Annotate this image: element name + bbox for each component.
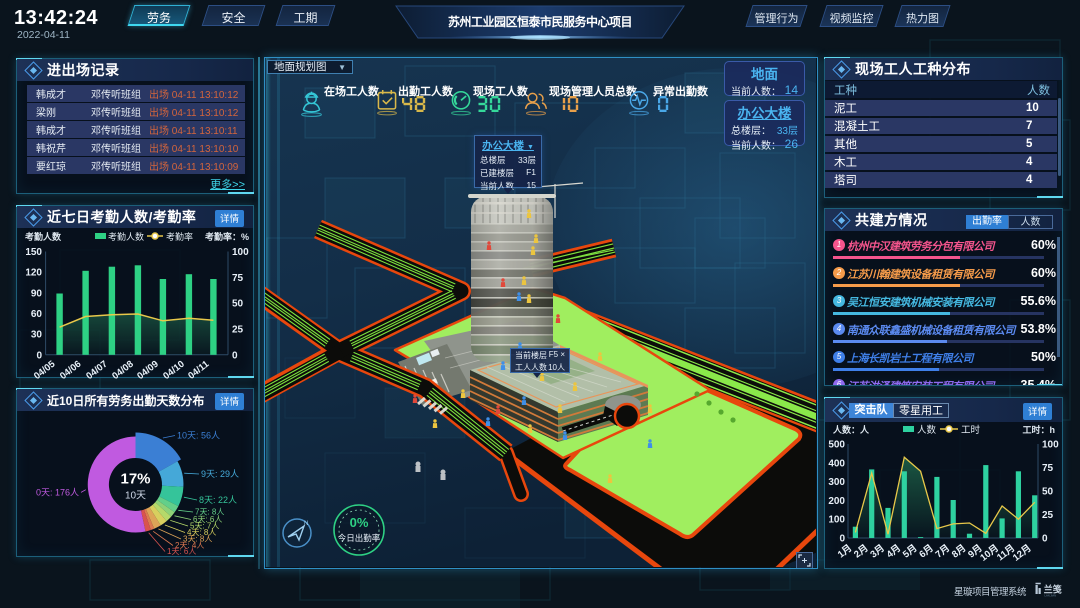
svg-text:0%: 0%	[350, 515, 369, 530]
svg-text:90: 90	[31, 288, 43, 299]
svg-text:0: 0	[839, 534, 845, 545]
svg-text:工时：h: 工时：h	[1023, 424, 1056, 435]
svg-text:人数：人: 人数：人	[832, 424, 870, 435]
svg-text:0天: 176人: 0天: 176人	[36, 487, 79, 497]
svg-text:04/07: 04/07	[84, 359, 110, 379]
svg-text:400: 400	[828, 458, 845, 469]
svg-text:考勤率: 考勤率	[166, 231, 193, 242]
svg-text:10天: 56人: 10天: 56人	[177, 431, 220, 441]
svg-text:9天: 29人: 9天: 29人	[201, 469, 239, 479]
svg-text:100: 100	[232, 247, 249, 258]
svg-text:200: 200	[828, 496, 845, 507]
svg-text:考勤率：%: 考勤率：%	[205, 231, 249, 242]
svg-text:0: 0	[36, 350, 42, 361]
svg-text:25: 25	[232, 325, 244, 336]
svg-text:今日出勤率: 今日出勤率	[338, 533, 381, 543]
svg-text:30: 30	[31, 330, 43, 341]
svg-text:25: 25	[1042, 510, 1054, 521]
svg-text:0: 0	[232, 350, 238, 361]
svg-text:8天: 22人: 8天: 22人	[199, 495, 237, 505]
svg-text:60: 60	[31, 309, 43, 320]
svg-text:N: N	[304, 521, 308, 527]
svg-text:0: 0	[1042, 534, 1048, 545]
svg-text:10天: 10天	[125, 491, 146, 502]
svg-text:17%: 17%	[120, 471, 150, 488]
svg-text:75: 75	[1042, 463, 1054, 474]
svg-text:04/05: 04/05	[32, 358, 58, 379]
svg-text:1天: 6人: 1天: 6人	[167, 547, 196, 556]
svg-text:考勤人数: 考勤人数	[108, 231, 144, 242]
svg-text:04/10: 04/10	[161, 359, 187, 379]
svg-text:75: 75	[232, 273, 244, 284]
svg-text:工时: 工时	[961, 424, 981, 436]
svg-text:04/08: 04/08	[110, 359, 136, 379]
svg-text:04/11: 04/11	[186, 358, 212, 379]
svg-text:50: 50	[1042, 487, 1054, 498]
svg-text:04/06: 04/06	[58, 359, 84, 379]
svg-text:人数: 人数	[917, 424, 937, 436]
svg-text:150: 150	[25, 247, 42, 258]
svg-text:12月: 12月	[1011, 543, 1034, 564]
svg-text:120: 120	[25, 268, 42, 279]
svg-text:100: 100	[828, 515, 845, 526]
svg-text:100: 100	[1042, 440, 1059, 451]
svg-text:兰笺: 兰笺	[1044, 584, 1062, 595]
svg-text:50: 50	[232, 299, 244, 310]
svg-text:LAN JIAN: LAN JIAN	[1045, 593, 1057, 597]
svg-text:300: 300	[828, 477, 845, 488]
svg-text:04/09: 04/09	[135, 359, 161, 379]
svg-text:考勤人数: 考勤人数	[25, 231, 62, 242]
svg-text:500: 500	[828, 440, 845, 451]
